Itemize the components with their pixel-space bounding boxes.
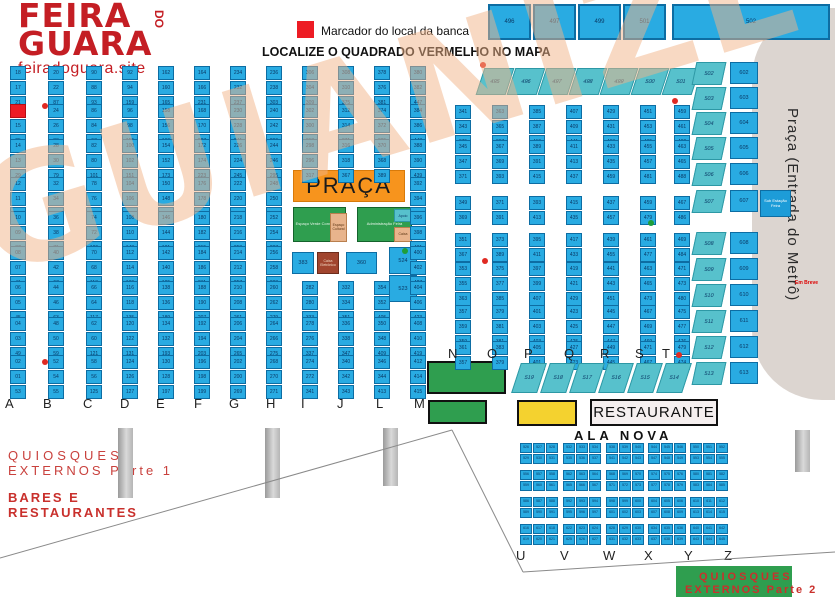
feira-map: Praça (Entrada do Metrô) Em Breve Sub Es… <box>0 0 835 600</box>
structure-lines <box>0 0 835 600</box>
